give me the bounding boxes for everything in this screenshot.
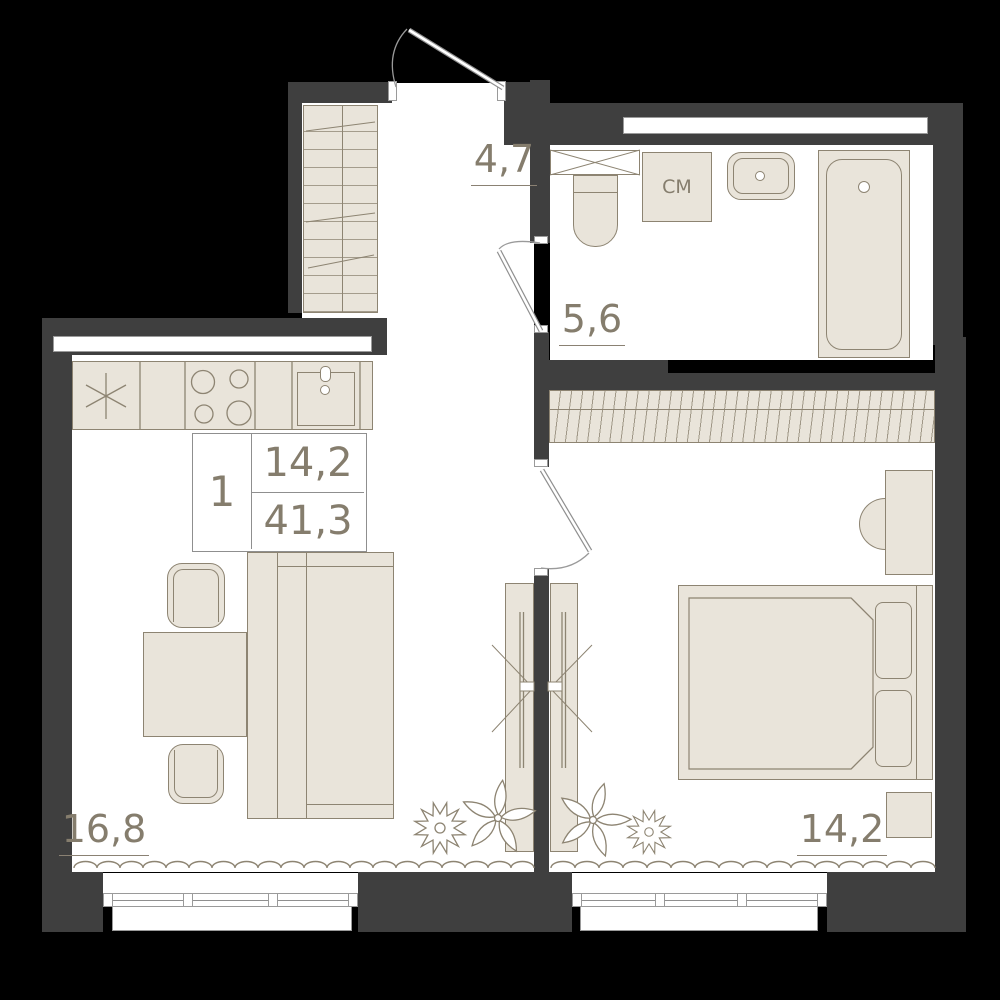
bedroom-area-label: 14,2 [796, 810, 888, 856]
sofa-top-line [277, 566, 393, 567]
hallway-area-label: 4,7 [462, 140, 546, 186]
window-mid-line [573, 900, 826, 901]
duct-box [550, 150, 640, 175]
wall [668, 373, 935, 390]
wall [358, 872, 572, 932]
nightstand [886, 792, 932, 838]
window-mullion [348, 893, 358, 907]
dining-table [143, 632, 247, 737]
chair-top [167, 563, 225, 628]
pillow-bottom [875, 690, 912, 767]
info-living-area: 14,2 [252, 434, 364, 492]
wall [935, 337, 966, 932]
wall [288, 83, 302, 313]
bathtub-drain [858, 181, 870, 193]
hallway-closet [303, 105, 378, 313]
closet-divider [342, 106, 343, 312]
wall [42, 872, 103, 932]
sofa-armrest-line [277, 553, 278, 818]
toilet-tank [573, 175, 618, 193]
info-total-area: 41,3 [252, 493, 364, 549]
toilet-bowl [573, 192, 618, 247]
living-kitchen-area-label: 16,8 [58, 810, 150, 856]
kitchen-faucet-base [320, 385, 330, 395]
bedroom-desk [885, 470, 933, 575]
door-jamb [388, 81, 397, 101]
window-mullion [572, 893, 582, 907]
bedroom-bay-window [572, 893, 827, 907]
bathroom-area-label: 5,6 [552, 300, 632, 346]
bathroom-window [623, 117, 928, 134]
bedroom-doorway-floor [534, 467, 549, 568]
window-mullion [268, 893, 278, 907]
floor-plan: СМ [0, 0, 1000, 1000]
washing-machine-label: СМ [643, 153, 711, 221]
sofa-bottom-line [306, 804, 393, 805]
wall [827, 872, 966, 932]
bay-sill-inner-bedroom [572, 873, 827, 893]
door-jamb [534, 325, 548, 333]
bay-sill-inner-living [103, 873, 358, 893]
door-jamb [534, 459, 548, 467]
window-mullion [183, 893, 193, 907]
wall [933, 103, 963, 345]
living-bay-window [103, 893, 358, 907]
pillow-top [875, 602, 912, 679]
radiator-panel-right [550, 583, 578, 852]
door-jamb [497, 81, 506, 101]
wall [534, 568, 549, 877]
sofa [247, 552, 394, 819]
info-rooms-count: 1 [193, 434, 251, 549]
bedroom-wardrobe [549, 390, 935, 443]
washing-machine: СМ [642, 152, 712, 222]
chair-bottom-seat [174, 750, 218, 798]
chair-bottom [168, 744, 224, 804]
wall [534, 332, 549, 467]
headboard-line [916, 586, 917, 779]
radiator-panel-left [505, 583, 534, 852]
kitchen-faucet [320, 366, 331, 382]
sink-drain [755, 171, 765, 181]
window-mullion [737, 893, 747, 907]
wardrobe-rail [550, 409, 934, 410]
entrance-door [392, 29, 503, 88]
door-jamb [534, 568, 548, 576]
info-plate: 1 14,2 41,3 [192, 433, 367, 552]
bay-sill-outer-bedroom [580, 907, 818, 931]
door-jamb [534, 236, 548, 244]
sofa-back-line [306, 553, 307, 818]
wall [504, 82, 533, 145]
wall [548, 360, 668, 390]
kitchen-window [53, 336, 372, 352]
bay-sill-outer-living [112, 907, 352, 931]
window-mullion [655, 893, 665, 907]
window-mullion [817, 893, 827, 907]
window-mullion [103, 893, 113, 907]
wall [288, 82, 392, 103]
window-mid-line [104, 900, 357, 901]
chair-top-seat [173, 569, 219, 622]
